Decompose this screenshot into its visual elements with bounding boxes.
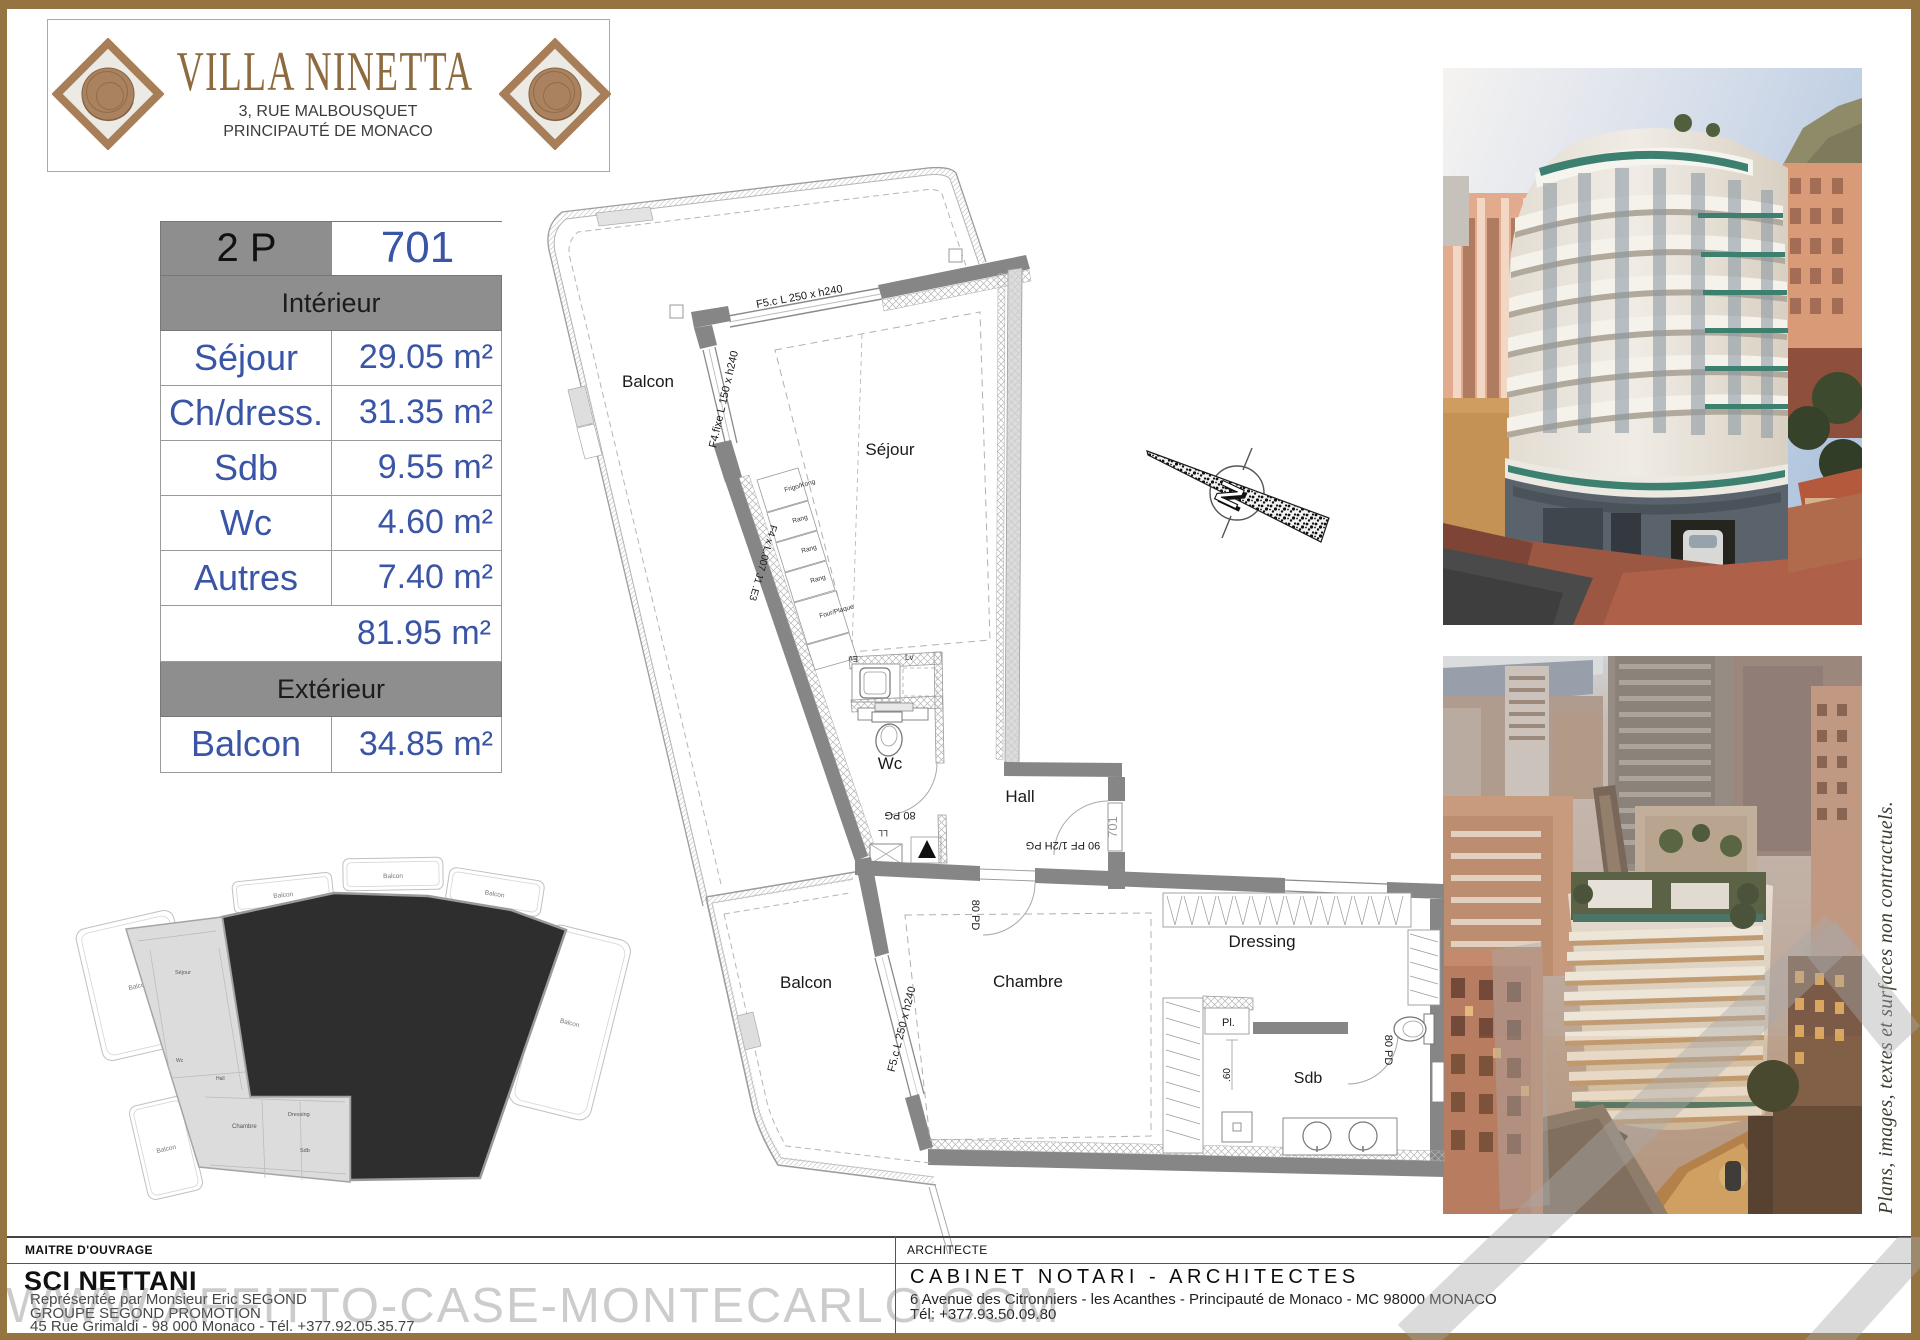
svg-text:Balcon: Balcon <box>622 372 674 391</box>
svg-text:Wc: Wc <box>878 754 903 773</box>
svg-text:.60: .60 <box>1222 1068 1233 1082</box>
svg-text:F5.c L 250 x h240: F5.c L 250 x h240 <box>755 283 843 311</box>
svg-text:Ev: Ev <box>849 654 858 663</box>
svg-text:Hall: Hall <box>216 1076 225 1082</box>
svg-text:Wc: Wc <box>176 1058 184 1064</box>
svg-text:Sdb: Sdb <box>300 1148 310 1154</box>
svg-text:Hall: Hall <box>1005 787 1034 806</box>
svg-text:701: 701 <box>1105 816 1120 838</box>
svg-text:Séjour: Séjour <box>865 440 914 459</box>
svg-text:Chambre: Chambre <box>993 972 1063 991</box>
svg-text:80 PG: 80 PG <box>884 809 915 821</box>
svg-text:LL: LL <box>878 828 888 838</box>
svg-text:Séjour: Séjour <box>175 970 191 976</box>
svg-text:Chambre: Chambre <box>232 1124 257 1130</box>
svg-text:80 PD: 80 PD <box>969 900 981 931</box>
svg-text:Dressing: Dressing <box>1228 932 1295 951</box>
svg-text:Balcon: Balcon <box>780 973 832 992</box>
svg-text:80 PD: 80 PD <box>1382 1035 1394 1066</box>
svg-text:Lv: Lv <box>905 653 913 662</box>
svg-text:Dressing: Dressing <box>288 1112 310 1118</box>
svg-text:90 PF 1/2H PG: 90 PF 1/2H PG <box>1026 839 1101 851</box>
svg-text:Balcon: Balcon <box>383 873 403 880</box>
svg-text:Pl.: Pl. <box>1222 1017 1235 1029</box>
svg-text:Sdb: Sdb <box>1294 1070 1323 1087</box>
